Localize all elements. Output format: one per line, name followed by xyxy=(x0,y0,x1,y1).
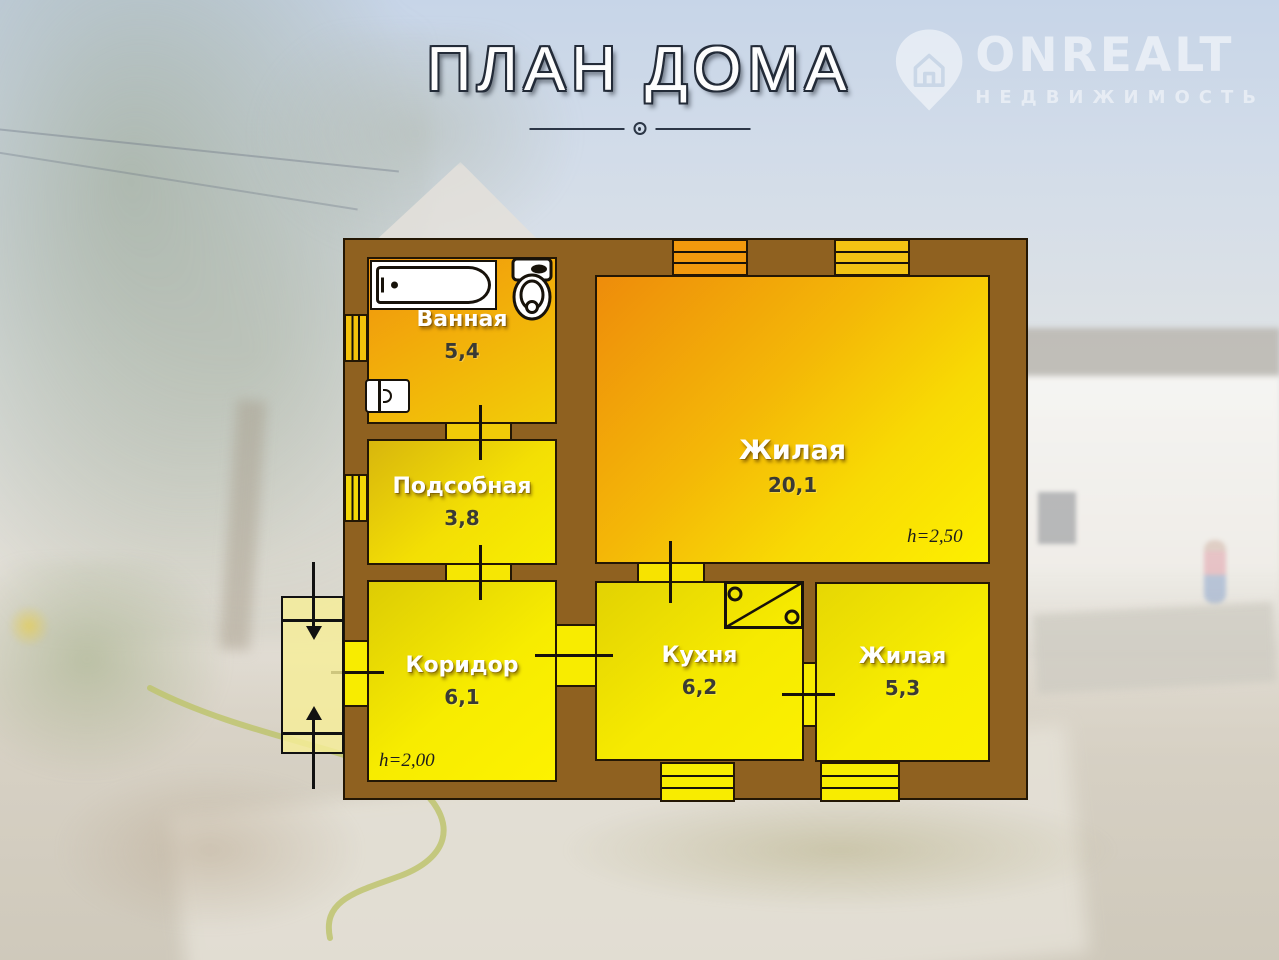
faucet-drain xyxy=(391,282,398,289)
logo-subtitle: НЕДВИЖИМОСТЬ xyxy=(975,87,1265,108)
sink-tap xyxy=(383,389,392,403)
title-divider xyxy=(529,122,750,135)
window-top-living xyxy=(834,239,910,276)
door-mark xyxy=(782,693,835,696)
door-mark xyxy=(669,541,672,603)
map-pin-house-icon xyxy=(893,22,965,118)
window-bottom-kitchen xyxy=(660,762,735,802)
room-living-small: Жилая 5,3 xyxy=(815,582,990,762)
room-label: Ванная xyxy=(417,307,508,332)
room-utility: Подсобная 3,8 xyxy=(367,439,557,565)
room-label: Кухня xyxy=(662,643,738,668)
room-area: 20,1 xyxy=(768,473,817,497)
faucet-icon xyxy=(381,278,384,293)
stove-icon xyxy=(724,581,804,629)
page-title: ПЛАН ДОМА xyxy=(427,34,853,105)
door-mark xyxy=(535,654,613,657)
logo: ONREALT НЕДВИЖИМОСТЬ xyxy=(893,22,1265,118)
divider-ornament-icon xyxy=(633,122,646,135)
entry-arrow-down xyxy=(312,562,315,627)
entry-arrow-down-head xyxy=(306,626,322,640)
entry-arrow-up-head xyxy=(306,706,322,720)
sink-divider xyxy=(378,381,381,411)
room-area: 6,1 xyxy=(444,685,479,709)
sink-icon xyxy=(365,379,410,413)
window-top-living xyxy=(672,239,748,276)
room-label: Подсобная xyxy=(393,474,532,499)
divider-line xyxy=(655,128,750,130)
logo-brand: ONREALT xyxy=(975,32,1265,79)
toilet-icon xyxy=(510,257,554,321)
window-left-utility xyxy=(344,474,368,522)
window-left-bathroom xyxy=(344,314,368,362)
room-living-large: Жилая 20,1 xyxy=(595,275,990,564)
floor-plan: Ванная 5,4 Подсобная 3,8 Коридор 6,1 Жил… xyxy=(343,238,1028,800)
ceiling-height-note: h=2,50 xyxy=(907,526,963,548)
room-label: Жилая xyxy=(859,644,946,669)
divider-line xyxy=(529,128,624,130)
window-bottom-living-small xyxy=(820,762,900,802)
ceiling-height-note: h=2,00 xyxy=(379,750,435,772)
poster: ONREALT НЕДВИЖИМОСТЬ ПЛАН ДОМА Ванная 5,… xyxy=(0,0,1279,960)
entry-arrow-up xyxy=(312,719,315,789)
logo-text: ONREALT НЕДВИЖИМОСТЬ xyxy=(975,32,1265,108)
room-label: Жилая xyxy=(739,435,846,466)
room-label: Коридор xyxy=(406,653,519,678)
room-area: 6,2 xyxy=(682,675,717,699)
room-area: 5,3 xyxy=(885,676,920,700)
room-area: 3,8 xyxy=(444,506,479,530)
bathtub-icon xyxy=(370,260,497,310)
door-mark xyxy=(479,545,482,600)
room-area: 5,4 xyxy=(444,339,479,363)
door-mark xyxy=(479,405,482,460)
